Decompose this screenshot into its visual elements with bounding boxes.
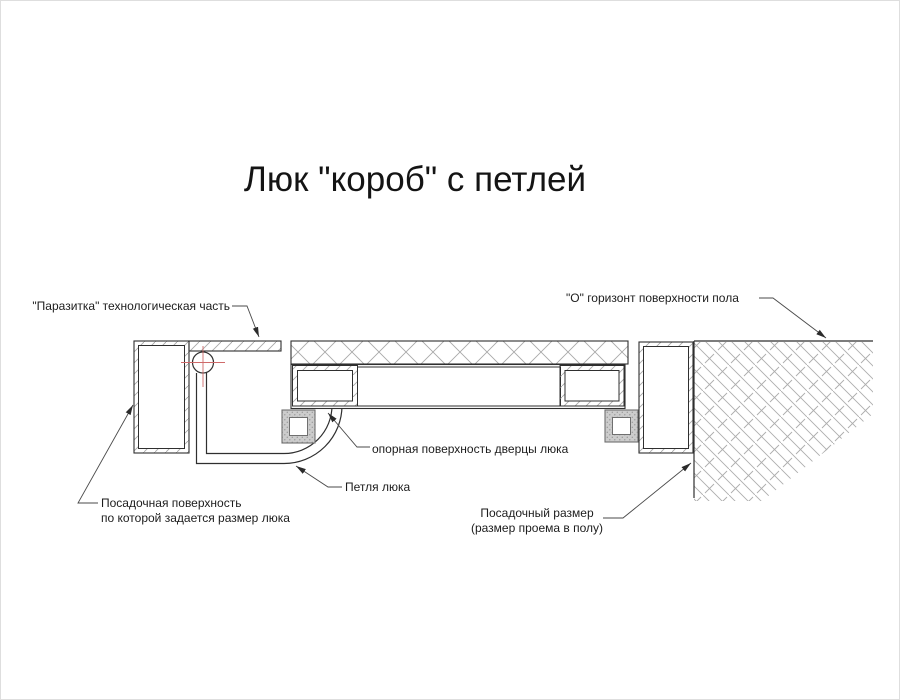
label-seat-size: Посадочный размер (размер проема в полу) bbox=[451, 506, 623, 535]
label-seat-surface: Посадочная поверхность по которой задает… bbox=[101, 496, 290, 525]
door-tube-left bbox=[293, 366, 358, 407]
label-parasitka: "Паразитка" технологическая часть bbox=[19, 299, 230, 314]
leader-parasitka bbox=[232, 306, 259, 337]
label-horizon: "О" горизонт поверхности пола bbox=[566, 291, 739, 306]
label-seat-surface-line1: Посадочная поверхность bbox=[101, 496, 290, 511]
hinge-mount-left bbox=[282, 410, 315, 443]
diagram-title: Люк "короб" с петлей bbox=[1, 157, 829, 203]
diagram-canvas bbox=[1, 1, 900, 700]
label-seat-surface-line2: по которой задается размер люка bbox=[101, 511, 290, 526]
label-seat-size-line1: Посадочный размер bbox=[451, 506, 623, 521]
leader-horizon bbox=[759, 298, 826, 338]
diagram-page: Люк "короб" с петлей "Паразитка" техноло… bbox=[0, 0, 900, 700]
floor-mass bbox=[694, 341, 873, 501]
hinge-mount-right bbox=[605, 410, 638, 442]
door-tube-right bbox=[560, 366, 624, 407]
door-slab bbox=[291, 341, 628, 364]
label-seat-size-line2: (размер проема в полу) bbox=[451, 521, 623, 536]
frame-profile-right bbox=[639, 342, 693, 453]
frame-profile-left bbox=[134, 341, 189, 453]
door-frame-row bbox=[291, 365, 625, 409]
leader-seat-surface bbox=[78, 405, 133, 503]
leader-hinge bbox=[296, 466, 342, 487]
label-door-support: опорная поверхность дверцы люка bbox=[372, 442, 568, 457]
leader-door-support bbox=[328, 413, 370, 447]
label-hinge: Петля люка bbox=[345, 480, 410, 495]
